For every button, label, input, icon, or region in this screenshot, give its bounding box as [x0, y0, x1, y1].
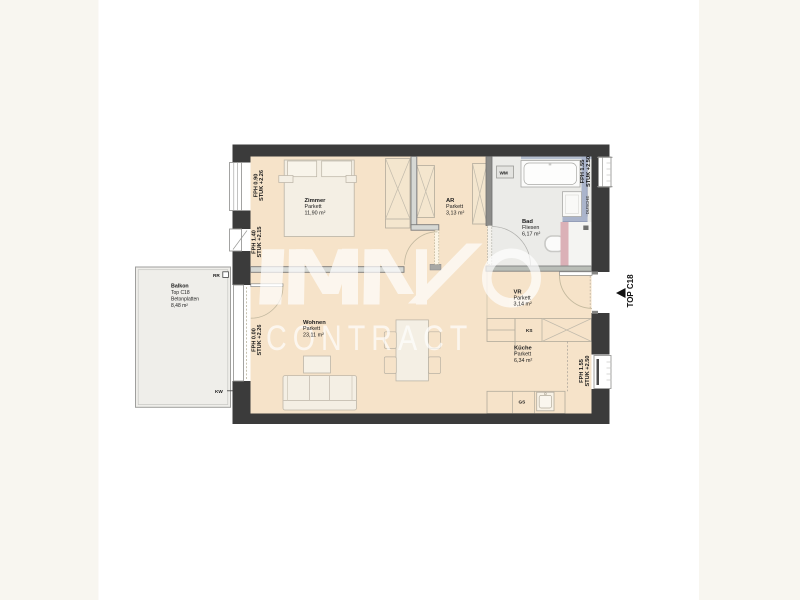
svg-text:Fliesen: Fliesen: [522, 225, 539, 231]
svg-text:8,48 m²: 8,48 m²: [171, 303, 188, 309]
svg-text:3,14 m²: 3,14 m²: [514, 302, 532, 308]
svg-text:GS: GS: [519, 400, 526, 405]
svg-text:Parkett: Parkett: [303, 326, 321, 332]
svg-text:DUSCHE: DUSCHE: [585, 196, 590, 215]
svg-text:STUK +2.26: STUK +2.26: [259, 170, 265, 201]
svg-text:Betonplatten: Betonplatten: [171, 297, 199, 303]
svg-text:Parkett: Parkett: [514, 352, 532, 358]
svg-text:Parkett: Parkett: [446, 204, 464, 210]
svg-text:TOP C18: TOP C18: [626, 274, 635, 308]
svg-text:WM: WM: [500, 171, 508, 176]
svg-text:CONTRACT: CONTRACT: [266, 318, 473, 357]
svg-text:STUK +2.26: STUK +2.26: [257, 325, 263, 356]
svg-text:Parkett: Parkett: [305, 204, 323, 210]
svg-text:STUK +2.50: STUK +2.50: [585, 356, 591, 387]
svg-text:3,13 m²: 3,13 m²: [446, 211, 464, 217]
svg-text:STUK +2.50: STUK +2.50: [586, 156, 592, 187]
svg-text:KS: KS: [526, 328, 533, 333]
svg-text:6,17 m²: 6,17 m²: [522, 232, 540, 238]
svg-text:RR: RR: [213, 273, 220, 278]
svg-text:STUK +2.15: STUK +2.15: [257, 227, 263, 258]
svg-text:Top C18: Top C18: [171, 290, 190, 296]
svg-text:KW: KW: [215, 389, 223, 394]
svg-text:Balkon: Balkon: [171, 284, 189, 290]
svg-text:11,90 m²: 11,90 m²: [305, 211, 326, 217]
svg-text:23,11 m²: 23,11 m²: [303, 333, 324, 339]
svg-text:6,34 m²: 6,34 m²: [514, 358, 532, 364]
